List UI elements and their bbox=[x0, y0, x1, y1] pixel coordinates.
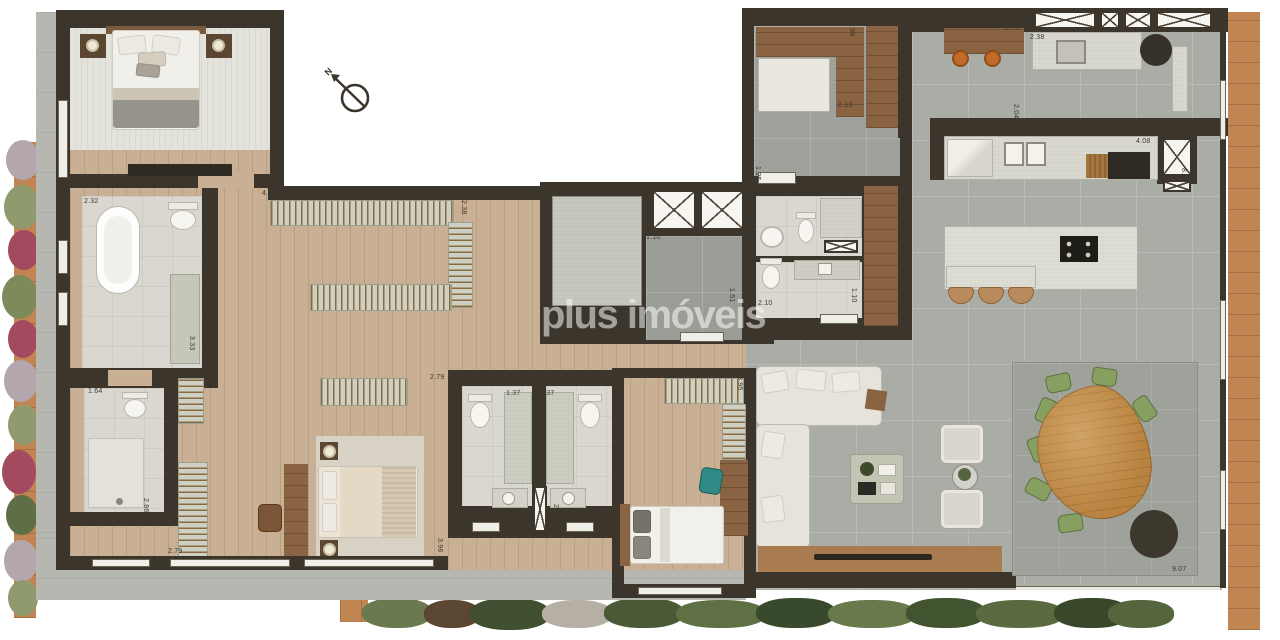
hedge-plant bbox=[756, 598, 836, 628]
bed3-headboard bbox=[620, 504, 630, 566]
garden-plant bbox=[6, 495, 38, 535]
garden-plant bbox=[4, 360, 38, 402]
right-wall-window bbox=[1220, 470, 1226, 530]
bath1-vanity bbox=[170, 274, 200, 364]
garden-plant bbox=[2, 275, 38, 319]
kitchen-window bbox=[1034, 11, 1096, 29]
right-wall-window bbox=[1220, 300, 1226, 380]
dim-label: 2.13 bbox=[838, 102, 852, 109]
pouf bbox=[1130, 510, 1178, 558]
left-wall-window bbox=[58, 240, 68, 274]
bath1-door-gap bbox=[108, 370, 152, 386]
kitchen-window bbox=[1156, 11, 1212, 29]
sink bbox=[818, 263, 832, 275]
bed3-fold bbox=[660, 508, 670, 562]
master-desk bbox=[284, 464, 308, 558]
master-closet-rack bbox=[178, 462, 208, 560]
closet-rack bbox=[310, 284, 452, 311]
washer bbox=[758, 58, 830, 112]
toilet bbox=[580, 402, 600, 428]
service-door bbox=[758, 172, 796, 184]
hedge-plant bbox=[676, 600, 766, 628]
island-cooktop bbox=[1060, 236, 1098, 262]
bath2-bottom-wall bbox=[56, 512, 178, 526]
dim-label: 8.35 bbox=[1180, 168, 1187, 182]
watermark: plus imóveis bbox=[541, 293, 765, 338]
bedroom3-closet-rack bbox=[664, 378, 744, 404]
dining-glass-rail bbox=[1016, 586, 1220, 590]
garden-plant bbox=[4, 540, 38, 582]
master-closet-rack bbox=[178, 378, 204, 424]
dim-label: 3.33 bbox=[188, 336, 195, 350]
left-wall-window bbox=[58, 292, 68, 326]
sink bbox=[502, 492, 515, 505]
master-pillow bbox=[322, 503, 337, 532]
service-wardrobe bbox=[866, 26, 898, 128]
master-closet-rack bbox=[320, 378, 408, 406]
closet-top-wall bbox=[268, 186, 548, 200]
sofa-pillow bbox=[831, 371, 861, 393]
living-bottom-wall bbox=[744, 572, 1016, 588]
toilet bbox=[760, 258, 782, 265]
dim-label: 4.07 bbox=[262, 190, 276, 197]
bedroom3-wardrobe bbox=[720, 460, 748, 536]
side-table-plant bbox=[958, 468, 971, 481]
sofa-tray bbox=[865, 389, 888, 412]
toilet bbox=[122, 392, 148, 399]
compass: N bbox=[324, 64, 378, 118]
shower-drain bbox=[116, 498, 123, 505]
shower-floor bbox=[88, 438, 144, 508]
side-counter bbox=[1172, 46, 1188, 112]
dim-label: 2.32 bbox=[84, 198, 98, 205]
balcony-door bbox=[170, 559, 290, 567]
toilet bbox=[168, 202, 198, 210]
dim-label: 4.08 bbox=[1136, 138, 1150, 145]
dim-label: 1.25 bbox=[754, 166, 761, 180]
dim-label: 2.04 bbox=[1012, 104, 1019, 118]
dim-label: 2.86 bbox=[142, 498, 149, 512]
master-throw bbox=[382, 467, 416, 537]
lamp bbox=[323, 445, 336, 458]
dining-chair bbox=[1057, 512, 1084, 533]
hedge-plant bbox=[542, 600, 612, 628]
bedroom1-balcony-door bbox=[58, 100, 68, 178]
sofa-pillow bbox=[795, 368, 827, 391]
table-book bbox=[880, 482, 896, 495]
shower bbox=[504, 392, 532, 484]
dishwasher bbox=[947, 139, 993, 177]
dim-label: 2.71 bbox=[552, 504, 559, 518]
dim-label: 2.38 bbox=[1030, 34, 1044, 41]
kitchen-window bbox=[1100, 11, 1120, 29]
bed3-pillow bbox=[633, 536, 651, 559]
kitchen-top-counter bbox=[1032, 32, 1142, 70]
kitchen-sink bbox=[1056, 40, 1086, 64]
dim-label: 2.10 bbox=[834, 190, 848, 197]
hedge-plant bbox=[1108, 600, 1174, 628]
bed3-pillow bbox=[633, 510, 651, 533]
toilet bbox=[468, 394, 492, 402]
garden-plant bbox=[4, 185, 40, 229]
hedge-plant bbox=[362, 598, 432, 628]
counter-cooktop bbox=[1108, 152, 1150, 179]
right-deck bbox=[1228, 12, 1260, 630]
bedroom3-window bbox=[638, 587, 722, 595]
kitchen-window bbox=[1124, 11, 1152, 29]
toilet bbox=[470, 402, 490, 428]
armchair bbox=[940, 489, 984, 529]
lamp bbox=[323, 543, 336, 556]
dim-label: 2.71 bbox=[470, 506, 477, 520]
dim-label: 1.37 bbox=[540, 390, 554, 397]
dim-label: 3.95 bbox=[736, 376, 743, 390]
bedroom3-closet-rack bbox=[722, 404, 746, 460]
toilet bbox=[578, 394, 602, 402]
kitchen-window-right bbox=[1162, 138, 1192, 176]
dim-label: 4.15 bbox=[244, 22, 258, 29]
garden-plant bbox=[6, 140, 40, 180]
table-book bbox=[858, 482, 876, 495]
bath-door bbox=[472, 522, 500, 532]
garden-plant bbox=[2, 450, 36, 494]
hedge-plant bbox=[604, 598, 684, 628]
lamp bbox=[212, 39, 225, 52]
service-right-wall bbox=[898, 8, 912, 138]
glass-partition bbox=[533, 486, 547, 532]
bar-stool bbox=[952, 50, 969, 67]
garden-plant bbox=[8, 580, 38, 616]
dim-label: 2.38 bbox=[460, 200, 467, 214]
left-terrace-floor bbox=[36, 12, 58, 598]
elevator-car bbox=[552, 196, 642, 306]
master-pillow bbox=[322, 471, 337, 500]
dim-label: 1.12 bbox=[746, 196, 753, 210]
bedroom3-top-wall bbox=[612, 368, 756, 378]
dim-label: 1.10 bbox=[850, 288, 857, 302]
round-sink bbox=[760, 226, 784, 248]
balcony-door bbox=[92, 559, 150, 567]
balcony-door bbox=[304, 559, 434, 567]
toilet bbox=[798, 219, 814, 243]
floor-plan-canvas: N plus imóveis 4.15 2.32 3.33 1.64 2.86 … bbox=[0, 0, 1280, 640]
toilet bbox=[796, 212, 816, 219]
island-ledge bbox=[946, 266, 1036, 288]
garden-plant bbox=[8, 320, 38, 358]
elevator-door-panel bbox=[700, 190, 744, 230]
toilet bbox=[762, 265, 780, 289]
table-plant bbox=[860, 462, 874, 476]
dim-label: 1.37 bbox=[506, 390, 520, 397]
bath1-right-wall bbox=[202, 188, 218, 386]
bath2-right-wall bbox=[164, 372, 178, 526]
double-sink-right bbox=[1026, 142, 1046, 166]
bar-stool bbox=[984, 50, 1001, 67]
tall-cabinet bbox=[864, 186, 898, 326]
dim-label: 1.98 bbox=[848, 22, 855, 36]
master-duvet bbox=[340, 467, 382, 537]
double-sink-left bbox=[1004, 142, 1024, 166]
sink bbox=[562, 492, 575, 505]
toilet bbox=[170, 210, 196, 230]
toilet bbox=[124, 399, 146, 418]
elevator-door-panel bbox=[652, 190, 696, 230]
dim-label: 1.64 bbox=[88, 388, 102, 395]
hedge-plant bbox=[470, 598, 550, 630]
shower-A bbox=[820, 198, 862, 238]
bed1-pillow bbox=[135, 63, 160, 78]
dim-label: 1.10 bbox=[646, 234, 660, 241]
sofa-pillow bbox=[760, 495, 785, 524]
lamp bbox=[86, 39, 99, 52]
teal-chair bbox=[698, 466, 724, 495]
hedge-plant bbox=[906, 598, 986, 628]
bathB-door bbox=[820, 314, 858, 324]
dim-label: 3.96 bbox=[436, 538, 443, 552]
coffee-table bbox=[850, 454, 904, 504]
cutting-board bbox=[1086, 154, 1108, 178]
right-wall-window bbox=[1220, 80, 1226, 140]
towel-rack bbox=[824, 240, 858, 253]
armchair bbox=[940, 424, 984, 464]
shower bbox=[546, 392, 574, 484]
hedge-plant bbox=[976, 600, 1064, 628]
hedge-plant bbox=[828, 600, 916, 628]
dim-label: 2.79 bbox=[430, 374, 444, 381]
bed1-blanket bbox=[113, 100, 199, 128]
tv bbox=[814, 554, 932, 560]
sofa-pillow bbox=[760, 431, 785, 460]
dim-label: 9.07 bbox=[1172, 566, 1186, 573]
closet-rack bbox=[270, 200, 454, 226]
desk-chair bbox=[258, 504, 282, 532]
dim-label: 2.79 bbox=[168, 548, 182, 555]
corner-basin bbox=[1140, 34, 1172, 66]
bedroom1-dresser bbox=[128, 164, 232, 176]
bathtub-inner bbox=[104, 216, 132, 284]
bath-door bbox=[566, 522, 594, 532]
table-book bbox=[878, 464, 896, 476]
dim-label: 3.73 bbox=[1004, 25, 1018, 32]
